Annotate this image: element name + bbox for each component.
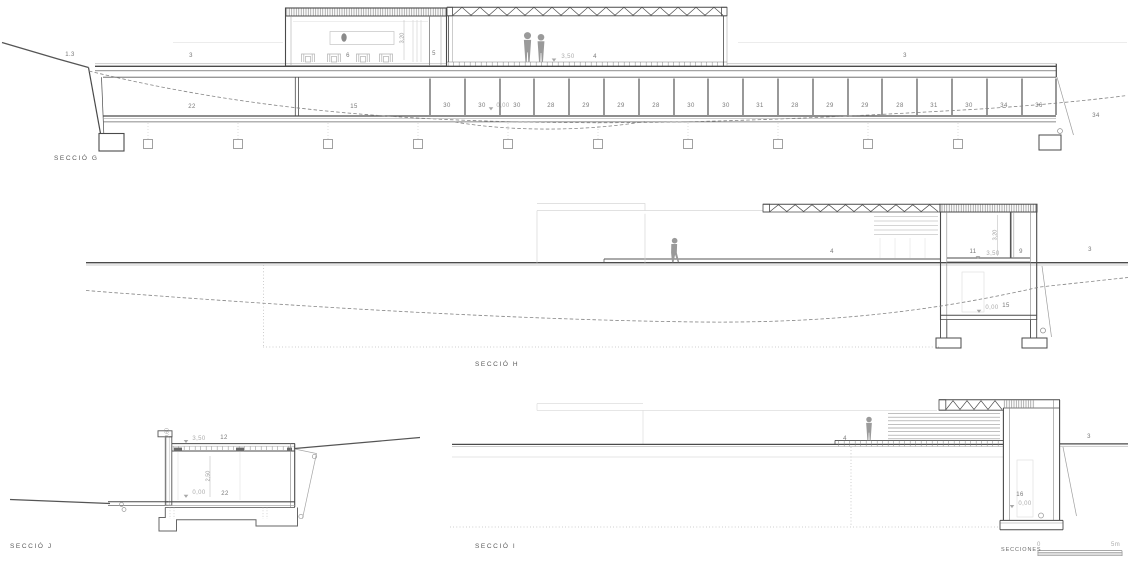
section-g-title: SECCIÓ G [54, 156, 99, 163]
label-room-upper-h: 11 [969, 249, 976, 255]
label-hall-h: 4 [830, 249, 834, 255]
table-icon [357, 54, 370, 62]
table-icon [328, 54, 341, 62]
label-room-mid-g: 15 [350, 104, 357, 110]
bay-number: 29 [826, 103, 833, 109]
bay-number: 36 [1035, 103, 1042, 109]
level-ground-i: 0,00 [1018, 501, 1031, 507]
section-j-linework [10, 431, 420, 531]
bay-number: 28 [791, 103, 798, 109]
label-room-side-h: 9 [1019, 249, 1023, 255]
label-roof-right-g: 3 [903, 53, 907, 59]
level-upper-h: 3,50 [986, 251, 999, 257]
roof-truss-icon [453, 7, 723, 15]
section-h-title: SECCIÓ H [475, 362, 519, 369]
bay-number: 30 [722, 103, 729, 109]
section-h-linework [86, 204, 1128, 348]
scale-max-label: 5m [1111, 542, 1120, 548]
roof-truss-icon [770, 205, 938, 212]
bay-number: 30 [478, 103, 485, 109]
level-ground-j: 0,00 [192, 490, 205, 496]
bay-number: 30 [443, 103, 450, 109]
label-roof-j: 12 [220, 435, 227, 441]
section-i-title: SECCIÓ I [475, 544, 516, 551]
label-room-lower-h: 15 [1002, 303, 1009, 309]
bay-number: 34 [1000, 103, 1007, 109]
label-roof-left-g: 3 [189, 53, 193, 59]
level-marker-icon [1010, 505, 1015, 508]
person-icon [524, 32, 531, 62]
bay-number: 30 [687, 103, 694, 109]
label-terrain-right-g: 34 [1092, 113, 1099, 119]
level-upper-j: 3,50 [192, 436, 205, 442]
bay-number: 30 [513, 103, 520, 109]
label-ground-right-i: 3 [1087, 434, 1091, 440]
dim-room-height-h: 3,20 [993, 230, 999, 241]
label-room-left-g: 22 [188, 104, 195, 110]
label-hall-g: 4 [593, 54, 597, 60]
level-marker-icon [489, 107, 494, 110]
person-icon [538, 34, 545, 62]
level-ground-h: 0,00 [985, 305, 998, 311]
bay-number: 28 [896, 103, 903, 109]
scale-zero-label: 0 [1037, 542, 1041, 548]
dim-pavilion-height-g: 3,20 [400, 33, 406, 44]
person-icon [866, 417, 872, 440]
bay-number: 31 [930, 103, 937, 109]
sections-drawing-sheet: 1.3 3 6 5 3,20 3,50 4 3 22 15 0,00 34 30… [0, 0, 1128, 564]
section-i-linework [450, 400, 1128, 530]
label-pavilion-room-g: 5 [432, 51, 436, 57]
level-marker-icon [184, 440, 189, 443]
label-deck-i: 4 [843, 436, 847, 442]
bay-number: 31 [756, 103, 763, 109]
label-terrain-left-g: 1.3 [65, 52, 75, 58]
bay-number: 28 [547, 103, 554, 109]
sheet-title: SECCIONES [1001, 548, 1042, 554]
bay-number: 29 [582, 103, 589, 109]
table-icon [380, 54, 393, 62]
person-icon [341, 33, 346, 42]
level-marker-icon [184, 495, 189, 498]
dim-room-height-j: 2,50 [206, 471, 212, 482]
scale-bar [1038, 551, 1122, 556]
roof-truss-icon [946, 401, 1002, 410]
dim-parapet-j: 0,60 [166, 428, 171, 438]
level-marker-icon [552, 59, 557, 62]
label-room-j: 22 [221, 491, 228, 497]
label-pavilion-g: 6 [346, 53, 350, 59]
footing-squares [144, 140, 963, 149]
section-linework [0, 0, 1128, 564]
bay-number: 29 [861, 103, 868, 109]
level-upper-g: 3,50 [561, 54, 574, 60]
bay-number: 29 [617, 103, 624, 109]
label-shaft-i: 16 [1016, 492, 1023, 498]
section-g-linework [2, 7, 1127, 151]
label-ground-right-h: 3 [1088, 247, 1092, 253]
bay-number: 30 [965, 103, 972, 109]
level-ground-g: 0,00 [496, 103, 509, 109]
section-j-title: SECCIÓ J [10, 544, 53, 551]
level-marker-icon [977, 310, 982, 313]
table-icon [302, 54, 315, 62]
bay-number: 28 [652, 103, 659, 109]
